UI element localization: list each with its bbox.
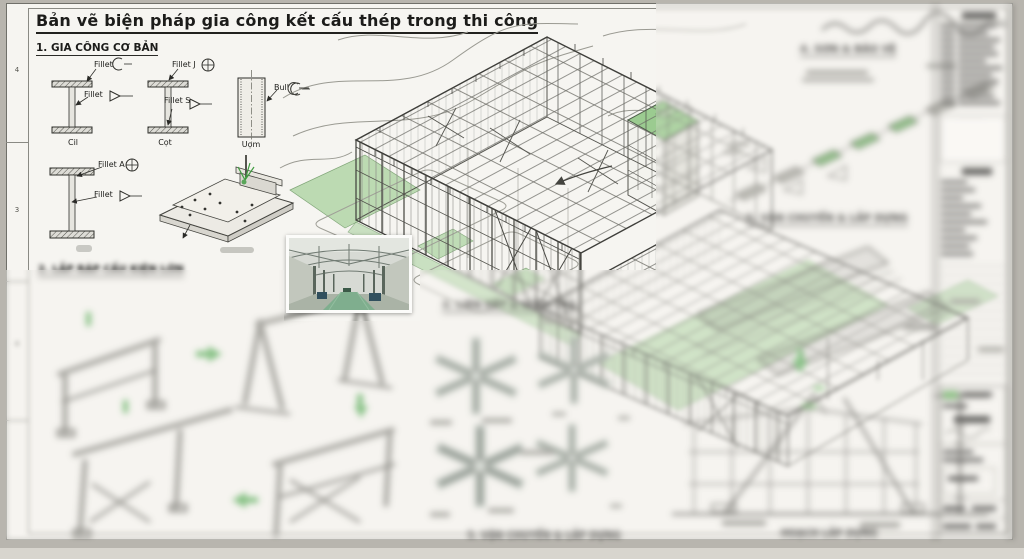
detail-caption: Cil [58, 138, 88, 147]
warehouse-photo [289, 238, 409, 310]
detail-caption: Cọt [150, 138, 180, 147]
blurred-note-smudge [542, 318, 584, 323]
margin-mark: 4 [10, 66, 24, 74]
star-node [440, 340, 606, 502]
fillet-label: Fillet [94, 61, 113, 70]
margin-tick [6, 420, 28, 421]
margin-mark: 4 [10, 340, 24, 348]
section5-heading: 5. VẬN CHUYỂN & LẮP DỰNG [746, 213, 908, 226]
title-block [932, 4, 1014, 540]
fillet-label: Fillet [94, 191, 113, 200]
section1-heading: 1. GIA CÔNG CƠ BẢN [36, 42, 158, 56]
margin-tick [6, 281, 28, 282]
fillet-label: Fillet [84, 91, 103, 100]
warehouse-photo-inset [286, 235, 412, 313]
section3-connections: 3. LIÊN KẾT & KIỂM TRA [424, 292, 664, 554]
fillet-label: Fillet S [164, 97, 190, 106]
weld-symbol-flag-icon [190, 99, 200, 109]
elevation-caption: HOẠCH LẮP DỰNG [734, 528, 924, 539]
blurred-caption-smudge [76, 245, 92, 252]
drawing-sheet-screenshot: { "sheet": { "title": "Bản vẽ biện pháp … [0, 0, 1024, 559]
ibeam-detail-3 [50, 159, 142, 252]
weld-symbol-arc-icon [288, 83, 309, 95]
section3-heading: 3. LIÊN KẾT & KIỂM TRA [442, 300, 576, 313]
weld-symbol-flag-icon [110, 91, 120, 101]
fillet-label: Fillet J [172, 61, 196, 70]
section3-bottom-caption: 5. VẬN CHUYỂN & LẮP DỰNG [452, 530, 636, 541]
weld-symbol-arc-icon [113, 58, 122, 70]
margin-mark: 3 [10, 206, 24, 214]
detail-caption: Uọm [236, 140, 266, 149]
connection-node-diagrams [424, 324, 664, 524]
margin-tick [6, 142, 28, 143]
blurred-label-smudges [430, 412, 630, 517]
blurred-caption-smudge [220, 247, 254, 253]
green-stamp-cell [943, 391, 958, 399]
section2-heading: 2. LẮP RÁP CẤU KIỆN LỚN [38, 264, 184, 277]
frame-assembly-steps [30, 282, 430, 544]
title-block-grid [932, 4, 1014, 540]
signature-scribble [946, 429, 990, 438]
weld-symbol-flag-icon [120, 191, 130, 201]
fillet-label: Fillet A [98, 161, 125, 170]
